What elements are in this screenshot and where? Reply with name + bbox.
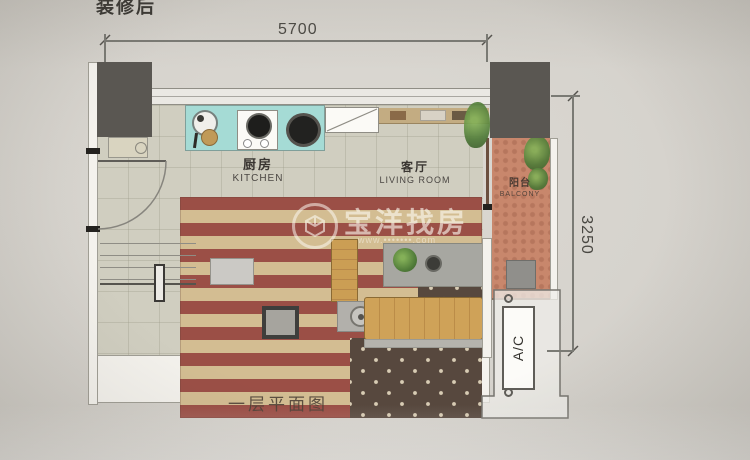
watermark-logo-icon	[292, 203, 338, 249]
balcony-edge-line	[492, 298, 550, 300]
door-jamb-cap	[86, 148, 100, 154]
structural-pillar-left	[97, 62, 152, 137]
plant-icon	[464, 102, 490, 148]
stair-handrail	[154, 264, 165, 302]
flag-rug-star-field	[350, 338, 482, 418]
balcony-label: 阳台 BALCONY	[490, 178, 550, 199]
dimension-extension	[547, 350, 574, 352]
fridge-cabinet	[325, 107, 379, 133]
balcony-divider-wall	[482, 238, 492, 358]
washer-door-icon	[135, 142, 147, 154]
kitchen-label: 厨房 KITCHEN	[208, 157, 308, 186]
dimension-width-label: 5700	[278, 21, 318, 39]
floorplan-photo: 装修后	[0, 0, 750, 460]
living-room-label-zh: 客厅	[365, 160, 465, 175]
tv-icon	[262, 306, 299, 339]
balcony-label-zh: 阳台	[490, 178, 550, 191]
burner-icon	[260, 139, 269, 148]
ac-unit: A/C	[502, 306, 535, 390]
ac-mount-circle	[504, 294, 513, 303]
balcony-planter	[506, 260, 536, 289]
stair-edge-line	[100, 283, 196, 285]
kitchen-label-en: KITCHEN	[208, 173, 308, 186]
dimension-line-right	[572, 96, 574, 352]
washing-machine	[108, 137, 148, 158]
wood-bench-vertical	[331, 239, 358, 302]
page-title: 装修后	[96, 0, 156, 19]
kitchen-label-zh: 厨房	[208, 157, 308, 173]
cube-icon	[302, 213, 328, 239]
ac-mount-circle	[504, 388, 513, 397]
balcony-divider-rail	[486, 138, 489, 206]
living-room-label-en: LIVING ROOM	[365, 175, 465, 186]
tv-cabinet	[210, 258, 254, 285]
stair-step-line	[100, 255, 196, 256]
pot-icon	[201, 129, 218, 146]
plant-icon	[393, 248, 417, 272]
dimension-extension	[551, 95, 580, 97]
utensil-icon	[193, 133, 198, 148]
window-glass-line	[152, 96, 490, 97]
burner-icon	[243, 139, 252, 148]
plant-icon	[524, 136, 550, 170]
sideboard-item	[390, 111, 406, 120]
stairs	[100, 243, 196, 289]
faucet-icon	[197, 115, 204, 122]
watermark-url: www.•••••••.com	[358, 235, 436, 245]
wok-icon	[286, 113, 321, 147]
bowl-icon	[425, 255, 442, 272]
structural-pillar-right	[490, 62, 550, 138]
kitchen-counter	[185, 105, 325, 151]
living-room-label: 客厅 LIVING ROOM	[365, 160, 465, 186]
stair-step-line	[100, 267, 196, 268]
sofa	[364, 297, 483, 340]
stair-step-line	[100, 279, 196, 280]
sofa-base	[364, 339, 483, 348]
balcony-label-en: BALCONY	[490, 191, 550, 200]
top-window-band	[152, 88, 490, 105]
door-jamb-cap	[86, 226, 100, 232]
balcony-door-cap	[483, 204, 492, 210]
stair-step-line	[100, 243, 196, 244]
ac-label: A/C	[511, 335, 527, 361]
dimension-extension	[104, 34, 106, 62]
dimension-line-top	[105, 40, 487, 42]
dimension-height-label: 3250	[575, 210, 595, 260]
coffee-table	[383, 243, 491, 287]
balcony-outer-wall	[550, 138, 558, 300]
dimension-extension	[486, 34, 488, 62]
wok-burner-icon	[246, 113, 272, 139]
plan-caption: 一层平面图	[228, 390, 328, 415]
stove-icon	[237, 110, 278, 150]
sideboard-item	[420, 110, 446, 121]
